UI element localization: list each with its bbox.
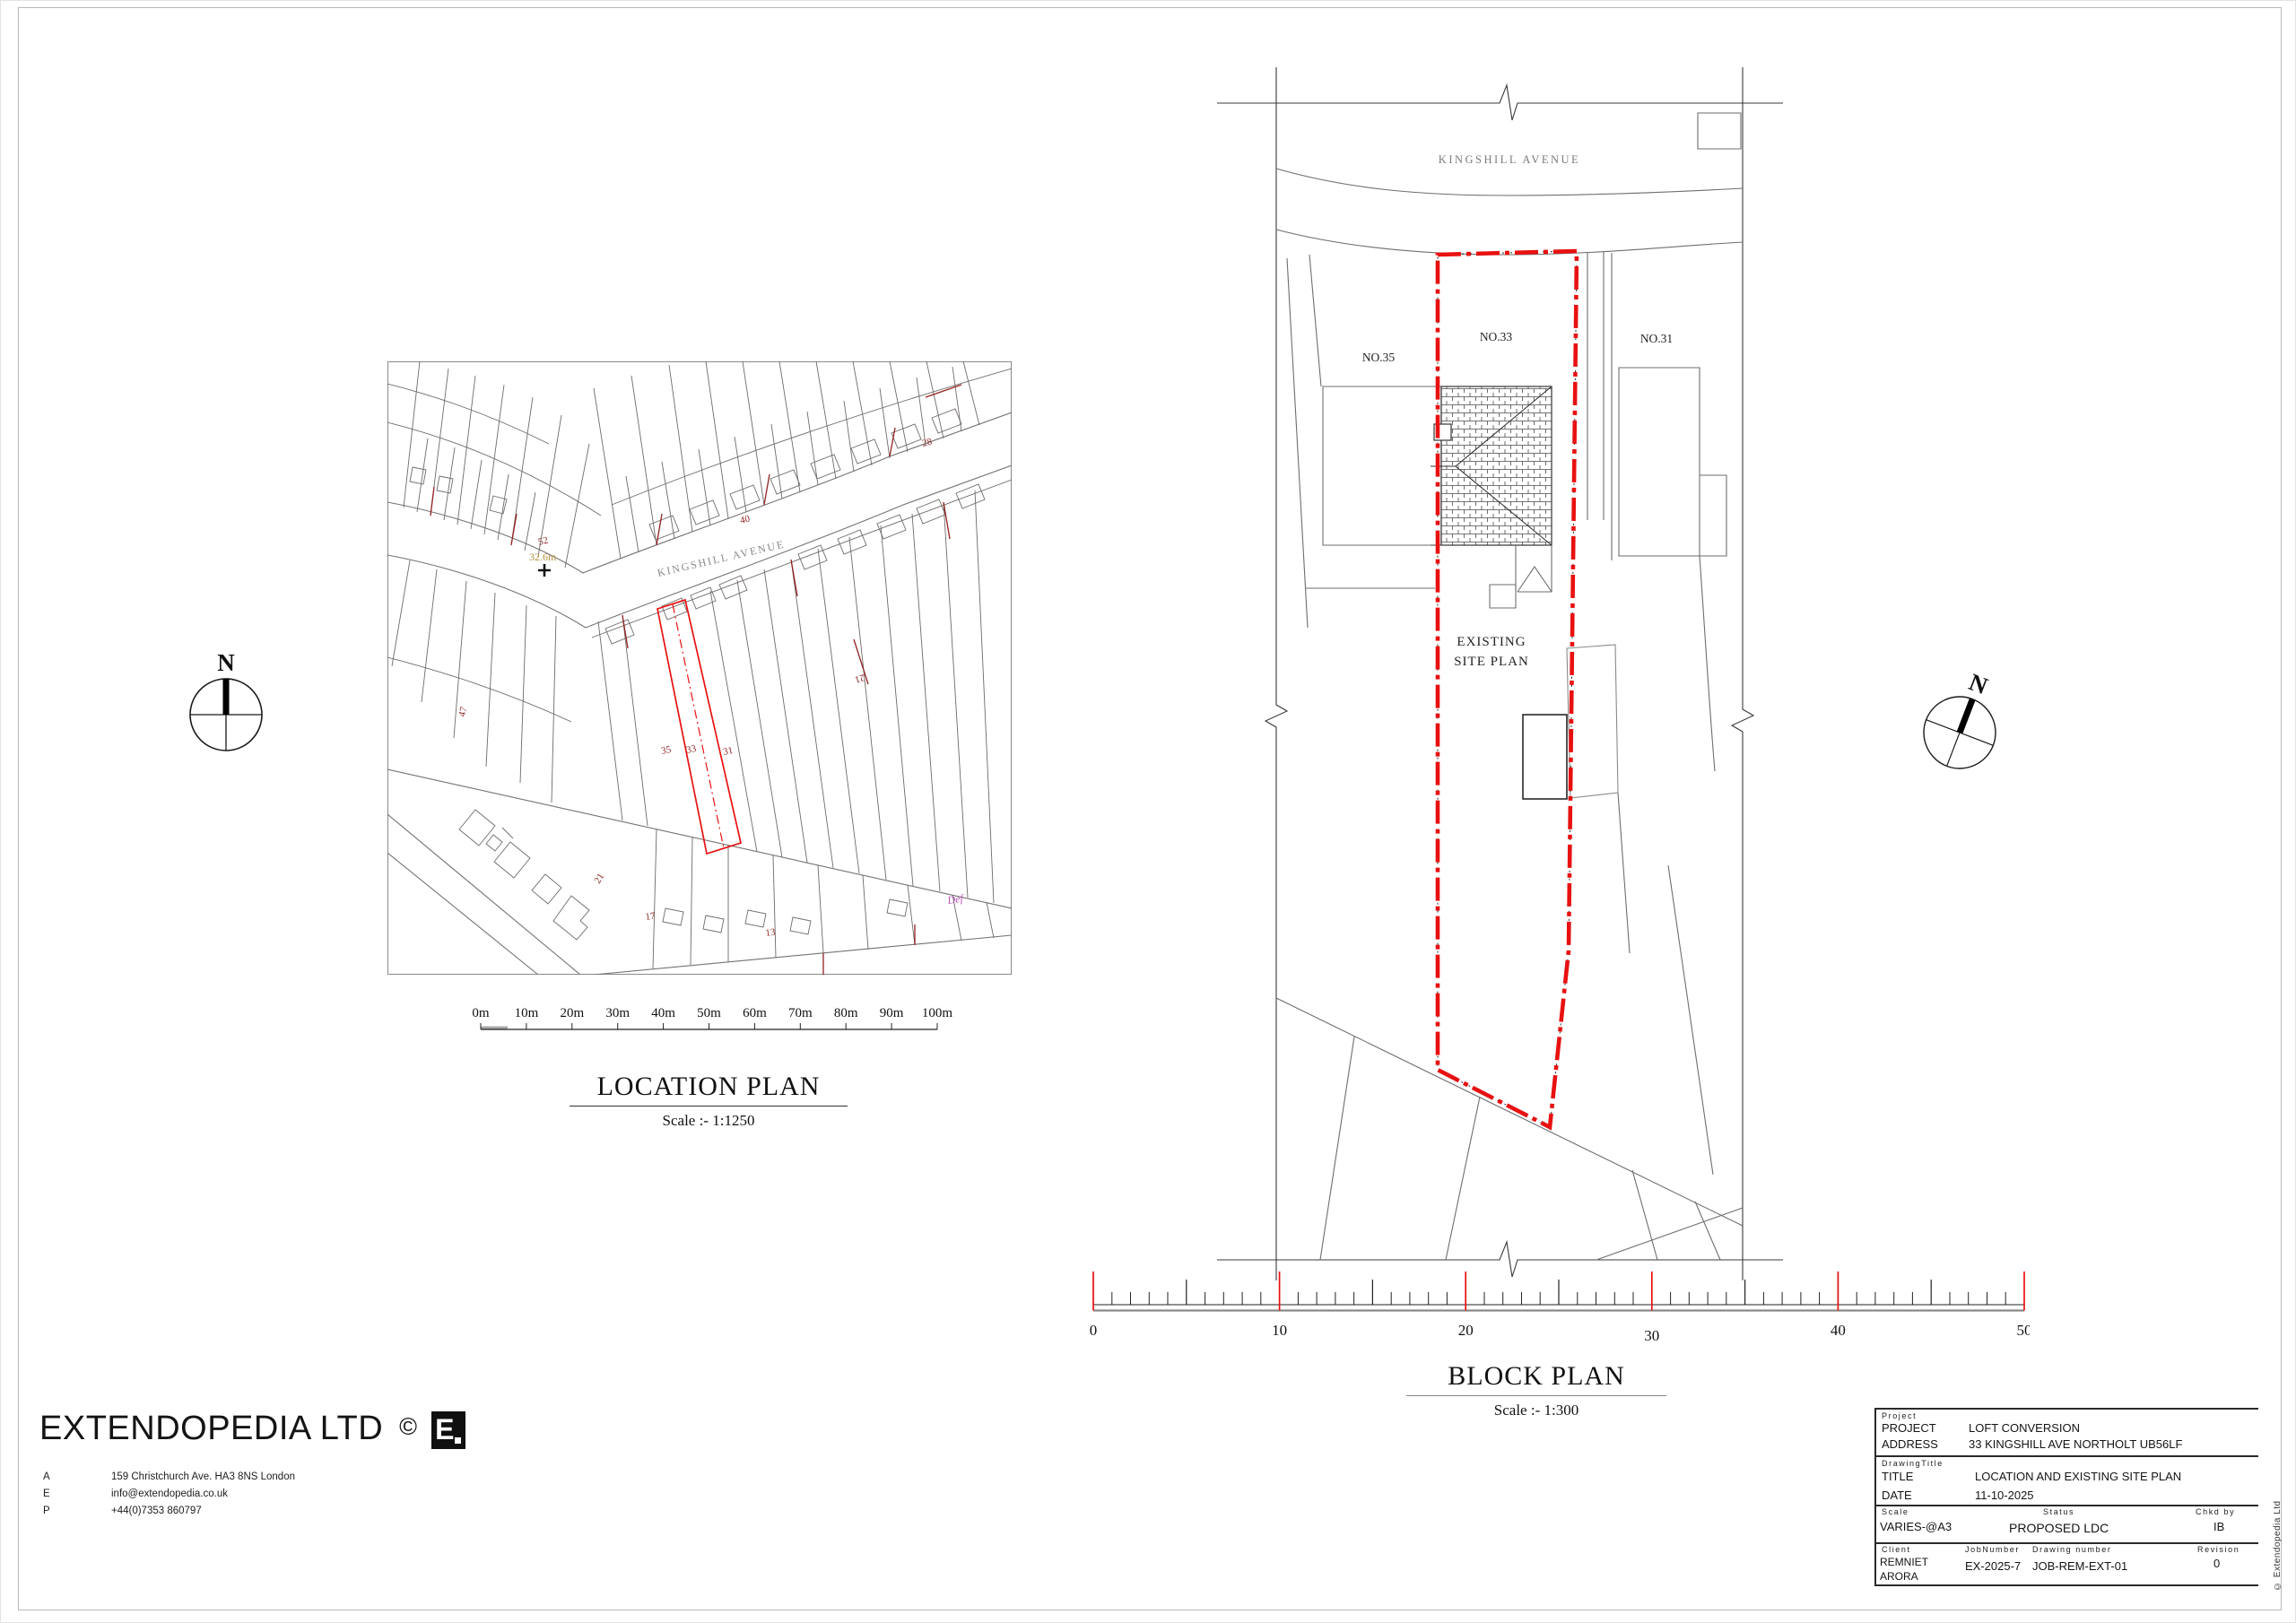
loc-tick-0: 0m (472, 1006, 490, 1020)
contact-value: 159 Christchurch Ave. HA3 8NS London (111, 1469, 295, 1486)
no35-house (1323, 386, 1441, 545)
site-boundary (1438, 251, 1577, 1127)
loc-tick-6: 60m (743, 1006, 767, 1020)
section-label-client: Client (1882, 1545, 1911, 1554)
job-number-value: EX-2025-7 (1965, 1559, 2021, 1573)
blk-tick-0: 0 (1090, 1322, 1098, 1339)
blk-tick-20: 20 (1458, 1322, 1474, 1339)
block-plan-title: BLOCK PLAN (1448, 1361, 1625, 1392)
block-plan-scale: Scale :- 1:300 (1494, 1402, 1578, 1419)
sheet-border (18, 7, 2282, 1610)
location-plan-title-block: LOCATION PLAN Scale :- 1:1250 (538, 1072, 879, 1130)
contact-row-address: A 159 Christchurch Ave. HA3 8NS London (43, 1469, 295, 1486)
loc-tick-5: 50m (697, 1006, 721, 1020)
blk-tick-40: 40 (1831, 1322, 1846, 1339)
north-arrow-right: N (1906, 662, 2013, 775)
red-dashed-boundary (1438, 251, 1577, 1127)
company-logo-icon: E (431, 1411, 465, 1449)
no33-building (1431, 386, 1552, 545)
blk-tick-10: 10 (1272, 1322, 1287, 1339)
no31-house (1619, 368, 1726, 556)
side-copyright: © Extendopedia Ltd (2273, 1411, 2283, 1591)
loc-tick-7: 70m (788, 1006, 813, 1020)
loc-tick-1: 10m (515, 1006, 539, 1020)
north-needle (1960, 699, 1972, 733)
scale-value: VARIES-@A3 (1880, 1520, 1952, 1533)
titleblock-divider (1874, 1455, 2258, 1457)
company-name: EXTENDOPEDIA LTD (39, 1410, 383, 1448)
drawing-title-value: LOCATION AND EXISTING SITE PLAN (1975, 1470, 2181, 1483)
contact-key: E (43, 1486, 111, 1503)
blockplan-street-label: KINGSHILL AVENUE (1439, 153, 1580, 166)
map-num-17: 17 (645, 910, 657, 922)
titleblock-left-border (1874, 1408, 1876, 1585)
loc-tick-10: 100m (922, 1006, 953, 1020)
spot-height-label: 32.6m (529, 551, 557, 563)
loc-tick-4: 40m (651, 1006, 675, 1020)
section-label-drawingtitle: DrawingTitle (1882, 1459, 1944, 1468)
title-block: Project PROJECT LOFT CONVERSION ADDRESS … (1874, 1408, 2258, 1587)
location-title-underline (570, 1106, 848, 1107)
no31-label: NO.31 (1640, 332, 1673, 345)
titleblock-divider (1874, 1542, 2258, 1544)
section-label-jobnumber: JobNumber (1965, 1545, 2020, 1554)
location-plan-map: 52 40 28 47 21 35 33 31 21 17 13 Def KIN… (387, 361, 1012, 975)
company-header: EXTENDOPEDIA LTD © E (39, 1410, 465, 1449)
section-label-status: Status (2043, 1507, 2074, 1516)
blockplan-frame (1217, 67, 1783, 1280)
logo-dot (455, 1437, 461, 1444)
contact-row-email: E info@extendopedia.co.uk (43, 1486, 295, 1503)
address-value: 33 KINGSHILL AVE NORTHOLT UB56LF (1969, 1437, 2182, 1451)
loc-tick-2: 20m (560, 1006, 584, 1020)
block-title-underline (1406, 1395, 1666, 1396)
loc-tick-8: 80m (834, 1006, 858, 1020)
hipped-roof (1441, 386, 1552, 545)
contact-value: +44(0)7353 860797 (111, 1503, 202, 1520)
blockplan-road (1276, 169, 1743, 255)
contact-key: P (43, 1503, 111, 1520)
blk-tick-50: 50 (2017, 1322, 2031, 1339)
location-plan-title: LOCATION PLAN (597, 1072, 821, 1102)
address-label: ADDRESS (1882, 1437, 1938, 1451)
block-plan-title-block: BLOCK PLAN Scale :- 1:300 (1366, 1361, 1707, 1419)
loc-tick-3: 30m (605, 1006, 630, 1020)
revision-value: 0 (2213, 1557, 2220, 1570)
copyright-symbol: © (399, 1413, 417, 1441)
logo-letter: E (435, 1413, 454, 1446)
section-label-chkdby: Chkd by (2196, 1507, 2235, 1516)
blockplan-plot-lines (1276, 113, 1743, 1260)
project-value: LOFT CONVERSION (1969, 1421, 2080, 1435)
section-label-project: Project (1882, 1411, 1917, 1420)
blk-tick-30: 30 (1644, 1327, 1659, 1344)
existing-site-plan-line2: SITE PLAN (1454, 655, 1529, 669)
block-plan: KINGSHILL AVENUE NO.35 NO.33 NO.31 EXIST… (1211, 54, 1803, 1296)
titleblock-divider (1874, 1408, 2258, 1410)
drawing-sheet: { "colors": { "boundary_red": "#e81111",… (0, 0, 2296, 1623)
block-scalebar: 0 10 20 30 40 50 (1088, 1269, 2030, 1354)
porch-and-step (1490, 545, 1552, 608)
status-value: PROPOSED LDC (2009, 1521, 2109, 1535)
contact-key: A (43, 1469, 111, 1486)
contact-value: info@extendopedia.co.uk (111, 1486, 228, 1503)
client-line2: ARORA (1880, 1570, 1918, 1583)
no35-label: NO.35 (1362, 351, 1396, 364)
existing-site-plan-line1: EXISTING (1457, 635, 1526, 649)
location-scalebar: 0m 10m 20m 30m 40m 50m 60m 70m 80m 90m 1… (453, 1002, 955, 1040)
date-label: DATE (1882, 1488, 1912, 1502)
contact-row-phone: P +44(0)7353 860797 (43, 1503, 295, 1520)
north-label: N (1965, 668, 1991, 699)
titleblock-divider (1874, 1584, 2258, 1586)
section-label-scale: Scale (1882, 1507, 1909, 1516)
loc-tick-9: 90m (880, 1006, 904, 1020)
no33-label: NO.33 (1480, 330, 1513, 343)
north-label: N (217, 649, 235, 676)
drawing-title-label: TITLE (1882, 1470, 1913, 1483)
map-num-13: 13 (765, 926, 777, 938)
contact-block: A 159 Christchurch Ave. HA3 8NS London E… (43, 1469, 295, 1520)
chkd-value: IB (2213, 1520, 2224, 1533)
drawing-number-value: JOB-REM-EXT-01 (2032, 1559, 2127, 1573)
client-line1: REMNIET (1880, 1556, 1928, 1568)
section-label-drawingnumber: Drawing number (2032, 1545, 2111, 1554)
titleblock-divider (1874, 1505, 2258, 1506)
north-arrow-left: N (176, 647, 276, 755)
location-plan-scale: Scale :- 1:1250 (663, 1112, 755, 1130)
date-value: 11-10-2025 (1975, 1488, 2034, 1502)
section-label-revision: Revision (2197, 1545, 2239, 1554)
project-label: PROJECT (1882, 1421, 1936, 1435)
